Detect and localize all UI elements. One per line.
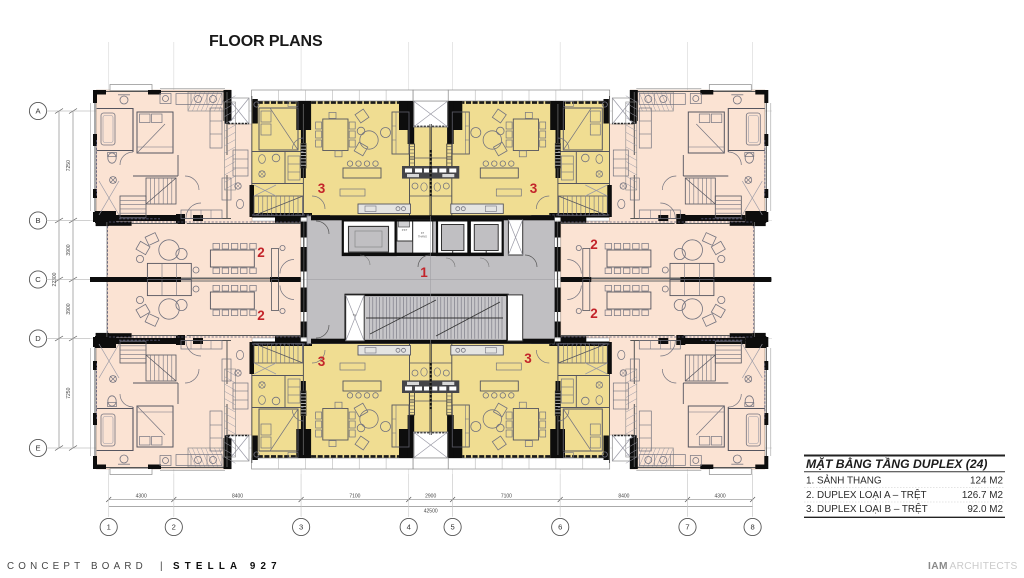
svg-text:3900: 3900 <box>66 303 72 314</box>
svg-text:B: B <box>35 216 40 225</box>
svg-text:3: 3 <box>299 523 303 532</box>
svg-text:2: 2 <box>590 237 598 252</box>
svg-text:THANG: THANG <box>418 235 427 239</box>
svg-text:2: 2 <box>257 245 265 260</box>
svg-text:2900: 2900 <box>425 493 436 499</box>
svg-text:1: 1 <box>107 523 111 532</box>
svg-text:2: 2 <box>590 306 598 321</box>
svg-text:8400: 8400 <box>618 493 629 499</box>
svg-text:7: 7 <box>685 523 689 532</box>
svg-text:3: 3 <box>524 351 532 366</box>
svg-text:3: 3 <box>530 181 538 196</box>
svg-text:42500: 42500 <box>424 509 438 515</box>
svg-text:D: D <box>35 334 41 343</box>
svg-text:TG: TG <box>353 313 357 317</box>
svg-text:6: 6 <box>558 523 562 532</box>
svg-text:7250: 7250 <box>66 160 72 171</box>
svg-text:|: | <box>160 561 163 572</box>
svg-text:3: 3 <box>318 181 326 196</box>
svg-text:CONCEPT BOARD: CONCEPT BOARD <box>7 561 147 572</box>
svg-text:7100: 7100 <box>349 493 360 499</box>
svg-text:FLOOR PLANS: FLOOR PLANS <box>209 33 323 50</box>
svg-text:7100: 7100 <box>501 493 512 499</box>
svg-text:ARCHITECTS: ARCHITECTS <box>950 561 1018 572</box>
svg-text:P.KT: P.KT <box>402 228 408 232</box>
svg-text:2: 2 <box>172 523 176 532</box>
svg-text:IAM: IAM <box>928 561 948 572</box>
svg-text:7250: 7250 <box>66 387 72 398</box>
svg-text:8: 8 <box>750 523 754 532</box>
svg-text:4: 4 <box>407 523 411 532</box>
svg-text:MẶT BẰNG TẦNG DUPLEX (24): MẶT BẰNG TẦNG DUPLEX (24) <box>806 456 987 471</box>
svg-text:3. DUPLEX LOẠI B – TRỆT: 3. DUPLEX LOẠI B – TRỆT <box>806 504 928 515</box>
svg-text:1: 1 <box>420 265 428 280</box>
svg-text:1. SẢNH THANG: 1. SẢNH THANG <box>806 475 882 487</box>
svg-text:STELLA 927: STELLA 927 <box>173 561 282 572</box>
svg-text:8400: 8400 <box>232 493 243 499</box>
svg-text:2. DUPLEX LOẠI A – TRỆT: 2. DUPLEX LOẠI A – TRỆT <box>806 490 927 501</box>
svg-text:4300: 4300 <box>715 493 726 499</box>
svg-text:5: 5 <box>450 523 454 532</box>
svg-text:4300: 4300 <box>136 493 147 499</box>
svg-text:126.7 M2: 126.7 M2 <box>962 490 1003 501</box>
svg-text:92.0 M2: 92.0 M2 <box>967 504 1003 515</box>
svg-text:3900: 3900 <box>66 244 72 255</box>
svg-text:E: E <box>35 444 40 453</box>
svg-text:124 M2: 124 M2 <box>970 476 1003 487</box>
svg-text:KT: KT <box>421 231 425 235</box>
svg-text:2: 2 <box>257 308 265 323</box>
svg-text:C: C <box>35 275 41 284</box>
svg-text:3: 3 <box>318 354 326 369</box>
